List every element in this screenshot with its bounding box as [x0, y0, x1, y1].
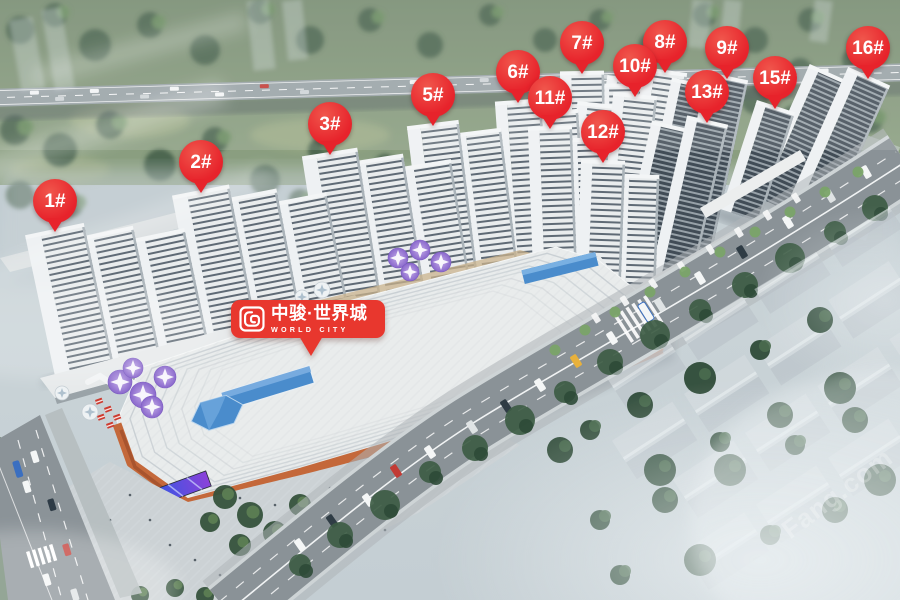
marker-tail: [698, 109, 716, 123]
marker-label: 6#: [507, 63, 528, 82]
building-marker-3[interactable]: 3#: [308, 102, 352, 155]
marker-balloon[interactable]: 2#: [179, 140, 223, 184]
marker-balloon[interactable]: 1#: [33, 179, 77, 223]
building-marker-16[interactable]: 16#: [846, 26, 890, 79]
marker-balloon[interactable]: 13#: [685, 70, 729, 114]
building-marker-5[interactable]: 5#: [411, 73, 455, 126]
marker-label: 9#: [716, 39, 737, 58]
marker-balloon[interactable]: 9#: [705, 26, 749, 70]
building-marker-2[interactable]: 2#: [179, 140, 223, 193]
marker-label: 15#: [759, 69, 791, 88]
building-marker-15[interactable]: 15#: [753, 56, 797, 109]
building-marker-1[interactable]: 1#: [33, 179, 77, 232]
marker-tail: [656, 59, 674, 73]
marker-label: 10#: [619, 57, 651, 76]
marker-tail: [424, 112, 442, 126]
logo-en-text: WORLD CITY: [271, 326, 367, 333]
building-marker-13[interactable]: 13#: [685, 70, 729, 123]
building-marker-12[interactable]: 12#: [581, 110, 625, 163]
project-logo-bubble: 中骏·世界城 WORLD CITY: [231, 300, 385, 338]
marker-label: 16#: [852, 39, 884, 58]
logo-bubble-tail: [299, 336, 323, 356]
marker-tail: [859, 65, 877, 79]
marker-balloon[interactable]: 5#: [411, 73, 455, 117]
marker-label: 2#: [190, 153, 211, 172]
marker-tail: [509, 89, 527, 103]
marker-tail: [46, 218, 64, 232]
marker-tail: [192, 179, 210, 193]
marker-label: 8#: [654, 33, 675, 52]
marker-label: 12#: [587, 123, 619, 142]
marker-balloon[interactable]: 12#: [581, 110, 625, 154]
marker-tail: [626, 83, 644, 97]
marker-tail: [766, 95, 784, 109]
marker-balloon[interactable]: 7#: [560, 21, 604, 65]
marker-tail: [541, 115, 559, 129]
building-marker-11[interactable]: 11#: [528, 76, 572, 129]
marker-tail: [321, 141, 339, 155]
marker-balloon[interactable]: 16#: [846, 26, 890, 70]
marker-balloon[interactable]: 3#: [308, 102, 352, 146]
marker-balloon[interactable]: 10#: [613, 44, 657, 88]
aerial-render-stage: 中骏·世界城 WORLD CITY 8#7#9#16#10#6#15#13#5#…: [0, 0, 900, 600]
worldcity-logo-icon: [239, 306, 265, 332]
marker-tail: [594, 149, 612, 163]
marker-label: 11#: [535, 89, 566, 108]
marker-balloon[interactable]: 11#: [528, 76, 572, 120]
building-marker-7[interactable]: 7#: [560, 21, 604, 74]
marker-label: 7#: [571, 34, 592, 53]
building-marker-10[interactable]: 10#: [613, 44, 657, 97]
marker-tail: [573, 60, 591, 74]
marker-label: 5#: [422, 86, 443, 105]
marker-label: 13#: [691, 83, 723, 102]
logo-cn-text: 中骏·世界城: [271, 305, 367, 323]
marker-label: 1#: [44, 192, 65, 211]
marker-label: 3#: [319, 115, 340, 134]
marker-balloon[interactable]: 15#: [753, 56, 797, 100]
